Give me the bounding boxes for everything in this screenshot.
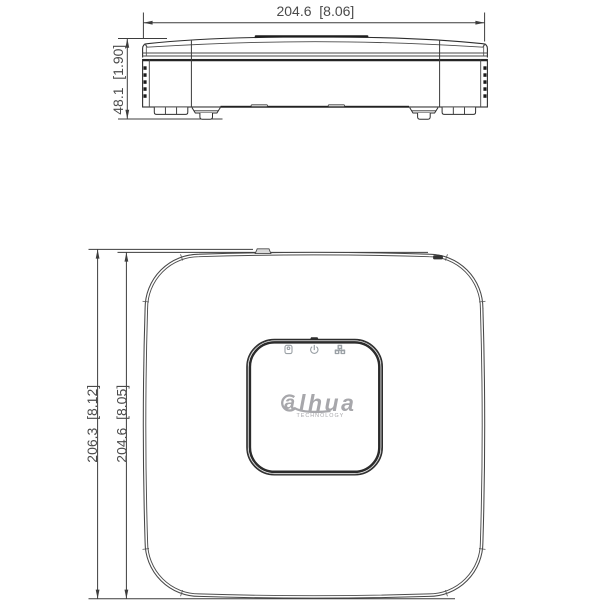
svg-text:lhua: lhua <box>299 390 356 416</box>
svg-text:204.6 [8.05]: 204.6 [8.05] <box>113 385 129 463</box>
svg-text:204.6 [8.06]: 204.6 [8.06] <box>276 3 354 19</box>
svg-text:206.3 [8.12]: 206.3 [8.12] <box>84 385 100 463</box>
svg-text:TECHNOLOGY: TECHNOLOGY <box>297 413 345 419</box>
svg-text:a: a <box>284 392 295 414</box>
svg-text:48.1 [1.90]: 48.1 [1.90] <box>110 45 126 115</box>
